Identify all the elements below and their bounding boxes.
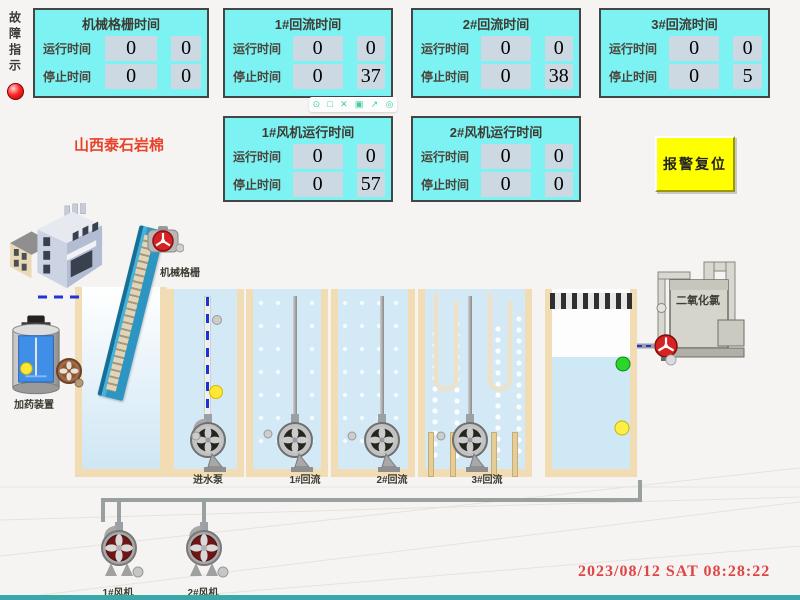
run-time-value-2: 0 [171, 36, 201, 61]
fault-indicator-label: 故障指示 [7, 6, 24, 80]
floating-toolbar: ⊙ □ ✕ ▣ ↗ ◎ [309, 97, 397, 112]
stop-time-value-1: 0 [481, 64, 531, 89]
zoom-icon[interactable]: ⊙ [313, 100, 321, 109]
reflux-2-label: 2#回流 [370, 471, 414, 486]
stop-time-value-2: 0 [171, 64, 201, 89]
stop-time-row: 停止时间 0 0 [421, 172, 573, 197]
panel-title: 2#风机运行时间 [413, 118, 579, 141]
fault-indicator: 故障指示 [6, 6, 24, 100]
stop-time-label: 停止时间 [43, 68, 97, 85]
alarm-reset-button[interactable]: 报警复位 [655, 136, 735, 192]
run-time-value-1: 0 [293, 144, 343, 169]
datetime-display: 2023/08/12 SAT 08:28:22 [578, 563, 764, 581]
run-time-label: 运行时间 [421, 40, 473, 57]
run-time-row: 运行时间 0 0 [421, 144, 573, 169]
run-time-row: 运行时间 0 0 [233, 36, 385, 61]
stop-time-value-1: 0 [293, 64, 343, 89]
stop-time-row: 停止时间 0 38 [421, 64, 573, 89]
run-time-value-1: 0 [481, 36, 531, 61]
panel-title: 1#风机运行时间 [225, 118, 391, 141]
timer-panel-fan-2: 2#风机运行时间 运行时间 0 0 停止时间 0 0 [411, 116, 581, 202]
stop-time-label: 停止时间 [421, 176, 473, 193]
stop-time-row: 停止时间 0 37 [233, 64, 385, 89]
panel-title: 3#回流时间 [601, 10, 768, 33]
run-time-row: 运行时间 0 0 [609, 36, 762, 61]
stop-time-row: 停止时间 0 0 [43, 64, 201, 89]
run-time-label: 运行时间 [421, 148, 473, 165]
run-time-row: 运行时间 0 0 [233, 144, 385, 169]
stop-time-row: 停止时间 0 57 [233, 172, 385, 197]
stop-time-row: 停止时间 0 5 [609, 64, 762, 89]
timer-panel-reflux-2: 2#回流时间 运行时间 0 0 停止时间 0 38 [411, 8, 581, 98]
fault-lamp-icon [7, 83, 24, 100]
stop-time-value-1: 0 [481, 172, 531, 197]
run-time-row: 运行时间 0 0 [421, 36, 573, 61]
bottom-strip [0, 595, 800, 600]
reflux-3-label: 3#回流 [465, 471, 509, 486]
stop-time-value-1: 0 [293, 172, 343, 197]
run-time-label: 运行时间 [233, 40, 285, 57]
stop-time-value-2: 38 [545, 64, 574, 89]
timer-panel-fan-1: 1#风机运行时间 运行时间 0 0 停止时间 0 57 [223, 116, 393, 202]
run-time-value-2: 0 [545, 144, 574, 169]
run-time-value-2: 0 [545, 36, 574, 61]
run-time-value-1: 0 [669, 36, 719, 61]
panel-title: 机械格栅时间 [35, 10, 207, 33]
inlet-pump-label: 进水泵 [186, 471, 230, 486]
grid-icon[interactable]: ▣ [355, 100, 364, 109]
timer-panel-screen-machine: 机械格栅时间 运行时间 0 0 停止时间 0 0 [33, 8, 209, 98]
stop-time-value-2: 5 [733, 64, 762, 89]
dosing-device-label: 加药装置 [8, 396, 60, 411]
float-balls [192, 316, 676, 441]
stop-time-value-2: 57 [357, 172, 386, 197]
stop-time-value-1: 0 [669, 64, 719, 89]
run-time-row: 运行时间 0 0 [43, 36, 201, 61]
run-time-label: 运行时间 [609, 40, 661, 57]
hmi-screen: 故障指示 机械格栅时间 运行时间 0 0 停止时间 0 0 1#回流时间 运行时… [0, 0, 800, 600]
stop-time-label: 停止时间 [233, 68, 285, 85]
run-time-label: 运行时间 [233, 148, 285, 165]
stop-time-label: 停止时间 [233, 176, 285, 193]
export-icon[interactable]: ↗ [371, 100, 379, 109]
window-icon[interactable]: □ [327, 100, 332, 109]
run-time-value-1: 0 [293, 36, 343, 61]
run-time-value-2: 0 [357, 36, 386, 61]
timer-panel-reflux-1: 1#回流时间 运行时间 0 0 停止时间 0 37 [223, 8, 393, 98]
run-time-value-1: 0 [481, 144, 531, 169]
run-time-value-2: 0 [357, 144, 386, 169]
stop-time-label: 停止时间 [609, 68, 661, 85]
reflux-1-label: 1#回流 [283, 471, 327, 486]
stop-time-label: 停止时间 [421, 68, 473, 85]
screen-machine-label: 机械格栅 [148, 264, 212, 279]
stop-time-value-2: 37 [357, 64, 386, 89]
run-time-value-1: 0 [105, 36, 157, 61]
panel-title: 1#回流时间 [225, 10, 391, 33]
panel-title: 2#回流时间 [413, 10, 579, 33]
company-label: 山西泰石岩棉 [64, 134, 174, 155]
run-time-value-2: 0 [733, 36, 762, 61]
stop-time-value-1: 0 [105, 64, 157, 89]
timer-panel-reflux-3: 3#回流时间 运行时间 0 0 停止时间 0 5 [599, 8, 770, 98]
stop-time-value-2: 0 [545, 172, 574, 197]
run-time-label: 运行时间 [43, 40, 97, 57]
close-icon[interactable]: ✕ [340, 100, 348, 109]
settings-icon[interactable]: ◎ [385, 100, 393, 109]
